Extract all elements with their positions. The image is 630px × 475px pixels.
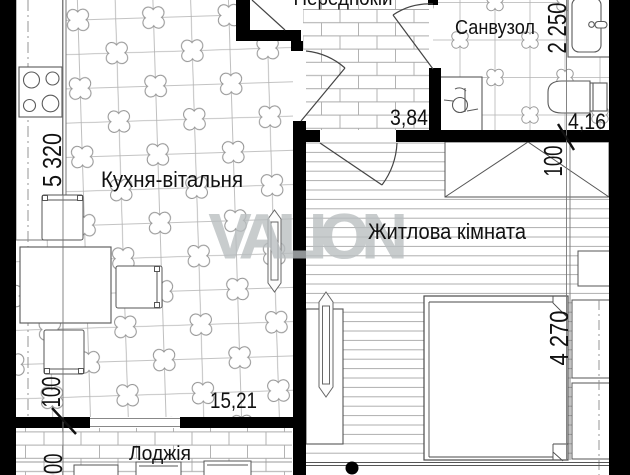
svg-text:000: 000 [38, 454, 68, 475]
svg-text:Санвузол: Санвузол [455, 17, 535, 39]
svg-text:5 320: 5 320 [37, 133, 67, 187]
svg-text:2 250: 2 250 [542, 3, 572, 54]
svg-text:Кухня-вітальня: Кухня-вітальня [101, 167, 243, 192]
svg-text:100: 100 [538, 146, 568, 177]
svg-text:Житлова кімната: Житлова кімната [368, 219, 527, 244]
svg-text:Передпокій: Передпокій [294, 0, 393, 10]
svg-text:15,21: 15,21 [210, 388, 257, 413]
svg-text:Лоджія: Лоджія [129, 443, 191, 465]
svg-text:3,84: 3,84 [390, 105, 428, 130]
svg-text:4,16: 4,16 [568, 109, 606, 134]
svg-text:100: 100 [36, 377, 66, 408]
svg-text:4 270: 4 270 [544, 311, 574, 366]
